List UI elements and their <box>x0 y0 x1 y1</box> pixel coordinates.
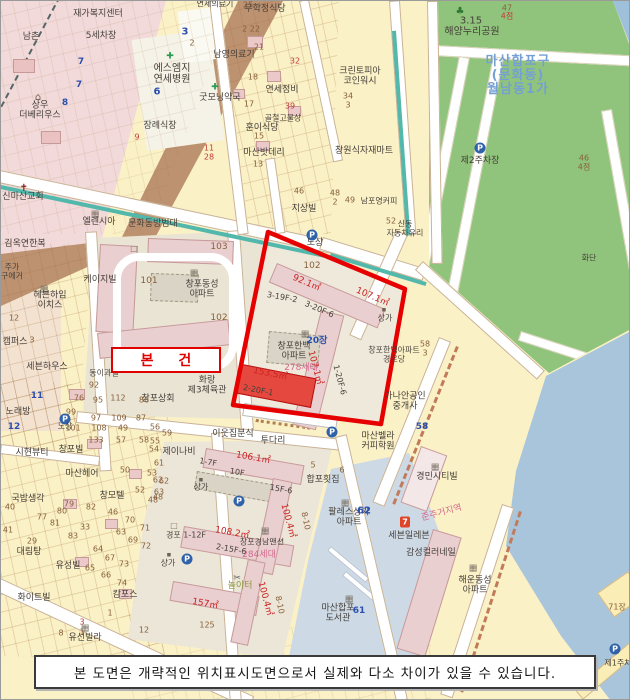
parking-icon: P <box>610 644 621 655</box>
map-label: 상가 <box>194 484 209 493</box>
shop-icon: ▪ <box>199 477 204 484</box>
map-label: 278세대 <box>284 364 318 374</box>
map-label: 주가 구에거 <box>1 263 23 280</box>
map-label: 3-19F-2 <box>266 291 298 305</box>
map-label: 73 <box>119 561 129 570</box>
map-label: 34 3 <box>343 92 353 109</box>
map-label: 18 <box>248 74 258 83</box>
map-label: 70 <box>125 517 135 526</box>
building-icon: ▦ <box>81 625 90 634</box>
map-label: 놀이터 <box>228 582 253 592</box>
map-label: 제1주차 <box>604 660 630 669</box>
map-label: 92 <box>89 382 99 391</box>
map-canvas: 연세의료기25무학정식당재가복지센터남촌5세차장2 2232남영의료기21에스엠… <box>0 0 630 700</box>
subject-label-box: 본 건 <box>111 347 221 373</box>
map-label: 세븐하우스 <box>26 363 67 373</box>
map-label: 102 <box>303 262 320 272</box>
map-label: 77 <box>37 514 47 523</box>
map-label: 제이나비 <box>162 448 195 458</box>
map-label: 102 <box>210 314 227 324</box>
map-label: 39 <box>285 103 295 112</box>
gate-icon: □ <box>130 245 138 253</box>
building-icon: ▦ <box>345 596 354 605</box>
map-label: 골철고물상 <box>265 115 302 124</box>
map-label: 해운동성 아파트 <box>458 576 491 595</box>
map-label: 20장 <box>307 337 328 347</box>
map-label: 재가복지센터 <box>73 10 123 20</box>
map-label: 32 <box>290 58 300 67</box>
hospital-icon: ✚ <box>166 53 174 62</box>
map-label: 125 <box>199 622 214 631</box>
map-label: 장례식장 <box>143 122 176 132</box>
map-label: 해양누리공원 <box>444 28 499 39</box>
map-label: 63 <box>116 529 126 538</box>
map-label: 남영의료기 <box>213 51 254 61</box>
map-label: 노래방 <box>6 408 31 418</box>
map-label: 8-10 <box>299 511 311 531</box>
map-label: 7 <box>78 58 84 68</box>
map-label: 국밥생각 <box>11 495 44 505</box>
map-label: 83 <box>68 533 78 542</box>
scissors-icon: ✂ <box>233 575 241 584</box>
map-label: 6 <box>154 88 161 99</box>
map-label: 창포상회 <box>141 395 174 405</box>
map-label: 캠퍼스 <box>3 338 28 348</box>
map-label: 33 <box>80 524 90 533</box>
map-label: 50 <box>120 467 130 476</box>
map-label: 남촌 <box>23 33 40 43</box>
building-icon: ▦ <box>431 464 440 473</box>
map-label: 창포빌 <box>59 446 84 456</box>
map-label: 72 <box>141 543 151 552</box>
map-label: 시현뷰티 <box>15 449 48 459</box>
map-label: 에스엠지 연세병원 <box>154 64 191 86</box>
map-label: 8 <box>58 630 63 639</box>
map-label: 무학정식당 <box>244 5 285 15</box>
map-label: 11 28 <box>204 144 214 161</box>
map-label: 창포한백 아파트 <box>277 342 310 361</box>
map-label: 97 <box>91 415 101 424</box>
map-label: 106.1㎡ <box>235 451 271 467</box>
parking-icon: P <box>327 427 338 438</box>
map-label: 62 <box>153 477 163 486</box>
parking-icon: P <box>182 554 193 565</box>
map-label: 마산벨라 커피학원 <box>361 432 394 451</box>
map-label: 창원식자재마트 <box>335 147 393 157</box>
building-icon: ▦ <box>91 211 100 220</box>
label-layer: 연세의료기25무학정식당재가복지센터남촌5세차장2 2232남영의료기21에스엠… <box>1 1 630 700</box>
map-label: 52 <box>135 487 145 496</box>
map-label: 9 <box>134 134 139 143</box>
tree-icon: ♣ <box>456 7 465 17</box>
map-label: 103 <box>210 243 227 253</box>
map-label: 95 <box>93 397 103 406</box>
map-label: 66 <box>101 572 111 581</box>
map-label: 153.5㎡ <box>252 367 288 383</box>
map-label: 40 <box>5 504 15 513</box>
map-label: 107.1㎡ <box>305 350 323 386</box>
map-label: 상가 <box>378 315 393 324</box>
map-label: 48 <box>148 497 158 506</box>
map-label: 창포한백아파트 경로당 <box>368 346 420 363</box>
map-label: 4점 <box>501 13 513 22</box>
map-label: 제2주차장 <box>461 157 500 167</box>
map-label: 92.1㎡ <box>291 274 322 294</box>
map-label: 5 <box>310 462 315 471</box>
parking-icon: P <box>234 496 245 507</box>
map-label: 108.2㎡ <box>214 526 250 542</box>
map-label: 65 <box>85 565 95 574</box>
map-label: 3-20F-6 <box>303 300 335 320</box>
map-label: 80 <box>57 508 67 517</box>
map-label: 41 <box>3 527 13 536</box>
map-label: 이웃집분식 <box>212 430 253 440</box>
map-label: 7 <box>76 81 82 91</box>
map-label: 2 <box>189 40 194 49</box>
map-label: 상가 <box>161 560 176 569</box>
building-icon: ▦ <box>40 286 49 295</box>
map-label: 상우 더베리우스 <box>19 101 60 120</box>
map-label: 49 <box>345 197 355 206</box>
shop-icon: ▪ <box>167 552 172 559</box>
map-label: 57 <box>116 437 126 446</box>
map-label: 11 <box>31 392 44 402</box>
map-label: 25 <box>243 2 253 11</box>
map-label: 5세차장 <box>86 32 117 42</box>
map-label: 101 <box>65 425 80 434</box>
map-label: 58 3 <box>420 340 430 357</box>
map-label: 신동 자동차유리 <box>387 220 424 237</box>
map-label: 46 4점 <box>578 154 590 171</box>
map-label: 101 <box>140 277 157 287</box>
map-label: 팔레스상가 아파트 <box>328 508 369 527</box>
map-label: 연세의료기 <box>197 1 234 10</box>
map-label: 64 <box>93 546 103 555</box>
map-label: 48 <box>153 494 163 503</box>
map-label: 합포횟집 <box>306 476 339 486</box>
pharmacy-icon: ✚ <box>211 84 219 93</box>
map-label: 준주거지역 <box>421 504 464 524</box>
map-label: 58 <box>139 437 149 446</box>
map-label: 74 <box>117 580 127 589</box>
map-label: 캄포스 <box>113 591 138 601</box>
map-label: 마산합포 도서관 <box>321 604 354 623</box>
building-icon: ▦ <box>190 270 199 279</box>
map-label: 마산헤어 <box>65 470 98 480</box>
map-label: 지상빌 <box>292 205 317 215</box>
map-label: 49 <box>118 425 128 434</box>
map-label: 마산합포구 (문화동) 월남동1가 <box>486 55 551 97</box>
caption-text: 본 도면은 개략적인 위치표시도면으로서 실제와 다소 차이가 있을 수 있습니… <box>74 662 556 682</box>
map-label: 김옥연한복 <box>4 240 45 250</box>
map-label: 2-15F-6 <box>215 543 247 557</box>
map-label: 12 <box>139 627 149 636</box>
map-label: 경민시티빌 <box>416 473 457 483</box>
map-label: 87 <box>136 415 146 424</box>
map-label: 82 <box>86 504 96 513</box>
map-label: 신마산교회 <box>2 193 43 203</box>
map-label: 56 <box>150 424 160 433</box>
map-label: 71장 <box>608 604 626 613</box>
map-label: 71 <box>140 525 150 534</box>
map-label: 59 <box>162 430 172 439</box>
map-label: 100.4㎡ <box>278 503 296 539</box>
map-label: 케이지빌 <box>83 276 116 286</box>
map-label: 58 <box>416 423 429 433</box>
map-label: 굿모닝약국 <box>199 94 240 104</box>
map-label: 21 <box>254 44 264 53</box>
map-label: 55 <box>150 438 160 447</box>
map-label: 1-20F-6 <box>331 364 347 396</box>
map-label: 연세정비 <box>265 86 298 96</box>
map-label: 유선빌라 <box>68 634 101 644</box>
map-label: 엘렌시아 <box>82 218 115 228</box>
map-label: 마산밧데리 <box>243 149 284 159</box>
map-label: 감성컬러네일 <box>406 549 456 559</box>
map-label: 경포 1-12F <box>166 532 206 541</box>
map-label: 1 <box>107 610 112 619</box>
map-label: 10F <box>229 467 245 478</box>
map-label: 헤븐하임 이치스 <box>33 291 66 310</box>
map-label: 유성빌 <box>56 562 81 572</box>
map-label: 29 <box>27 538 37 547</box>
map-label: 284세대 <box>242 551 276 561</box>
map-label: 76 <box>74 395 84 404</box>
map-label: 3 <box>182 28 189 39</box>
map-label: 대림탕 <box>17 548 42 558</box>
parking-icon: P <box>307 230 318 241</box>
map-label: 화단 <box>582 255 597 264</box>
map-label: 훈이식당 <box>245 124 278 134</box>
map-label: 6 <box>339 467 344 476</box>
map-label: 1-7F <box>199 457 218 469</box>
map-label: 8 <box>62 99 68 109</box>
subject-label: 본 건 <box>131 350 202 370</box>
map-label: 86 <box>139 397 149 406</box>
map-label: 13 <box>253 161 263 170</box>
map-label: 63 <box>154 489 164 498</box>
building-icon: ▦ <box>341 500 350 509</box>
map-label: 52 <box>386 218 396 227</box>
map-label: 79 <box>64 501 74 510</box>
parking-icon: P <box>475 143 486 154</box>
map-label: 3.15 <box>460 17 482 28</box>
building-icon: ▦ <box>469 565 478 574</box>
map-label: 61 <box>154 460 164 469</box>
map-label: 3 <box>29 337 34 346</box>
map-label: 12 <box>8 423 21 433</box>
map-label: 문화동방범대 <box>128 220 178 230</box>
map-label: 화랑 제3체육관 <box>188 376 227 395</box>
map-label: 53 <box>147 470 157 479</box>
map-label: 크린토피아 코인워시 <box>339 67 380 86</box>
map-label: 15F-6 <box>269 484 293 496</box>
map-label: 노상 <box>307 239 324 249</box>
lodging-icon: ⌂ <box>35 93 41 103</box>
map-label: 157㎡ <box>191 598 218 612</box>
map-label: 투다리 <box>261 437 286 447</box>
map-label: 창포경남맨션 <box>240 539 284 548</box>
map-label: 남포영커피 <box>361 198 398 207</box>
map-label: 2 22 <box>242 26 260 35</box>
map-label: 15 <box>254 133 264 142</box>
map-label: 48 2 <box>330 189 340 206</box>
map-label: 세븐일레븐 <box>388 532 429 542</box>
map-label: 100.4㎡ <box>255 581 273 617</box>
church-icon: ✝ <box>20 184 28 194</box>
map-label: 67 <box>105 555 115 564</box>
shop-icon: ▪ <box>382 307 387 314</box>
map-label: 62 <box>159 478 169 487</box>
map-label: 2-20F-1 <box>242 384 274 398</box>
building-icon: ▦ <box>261 528 270 537</box>
map-label: 81 <box>50 520 60 529</box>
map-label: 47 <box>502 5 512 14</box>
parking-icon: P <box>60 414 71 425</box>
map-label: 62 <box>357 507 371 518</box>
map-label: 54 <box>149 446 159 455</box>
map-label: 17 <box>244 101 254 110</box>
caption-bar: 본 도면은 개략적인 위치표시도면으로서 실제와 다소 차이가 있을 수 있습니… <box>34 655 596 689</box>
map-label: 108 <box>91 425 106 434</box>
map-label: 46 <box>294 188 304 197</box>
gate-icon: □ <box>170 522 178 530</box>
map-label: 46 <box>108 509 118 518</box>
map-label: 133 <box>88 437 103 446</box>
map-label: 가나안공인 중개사 <box>384 392 425 411</box>
map-label: 8-10 <box>273 595 285 615</box>
map-label: 창포동성 아파트 <box>185 280 218 299</box>
building-icon: ▦ <box>301 331 310 340</box>
map-label: 109 <box>111 415 126 424</box>
map-label: 61 <box>353 607 366 617</box>
map-label: 69 <box>128 537 138 546</box>
map-label: 12 <box>9 315 19 324</box>
map-label: 창모텔 <box>100 492 125 502</box>
map-label: 화이트빌 <box>17 594 50 604</box>
map-label: 112 <box>110 395 125 404</box>
seven-eleven-icon: 7 <box>400 517 410 528</box>
